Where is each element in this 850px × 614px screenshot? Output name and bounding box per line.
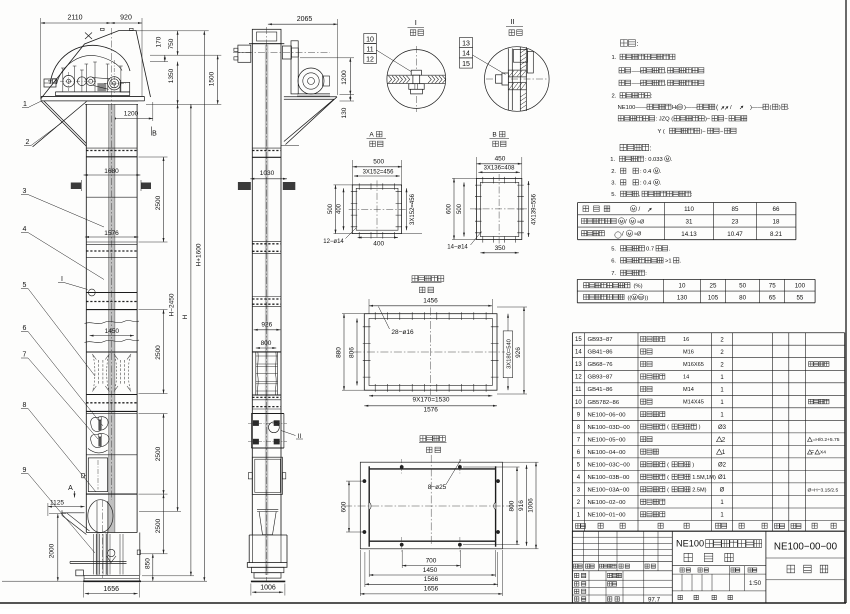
svg-text:GB5782−86: GB5782−86 bbox=[588, 400, 620, 406]
svg-text:Ø=H−3.15/2.5: Ø=H−3.15/2.5 bbox=[808, 487, 839, 493]
svg-text:M16X65: M16X65 bbox=[683, 362, 704, 368]
svg-text:3X180=540: 3X180=540 bbox=[507, 339, 513, 369]
svg-text:1350: 1350 bbox=[168, 68, 175, 83]
svg-text:M16: M16 bbox=[683, 350, 694, 356]
svg-text:1006: 1006 bbox=[260, 585, 276, 592]
svg-text:880: 880 bbox=[335, 347, 342, 358]
svg-text:55: 55 bbox=[796, 294, 803, 301]
svg-text:(: ( bbox=[667, 462, 669, 468]
svg-text:H: H bbox=[182, 314, 189, 319]
svg-text:M: M bbox=[639, 295, 643, 300]
svg-text:700: 700 bbox=[426, 557, 437, 564]
svg-text:1200: 1200 bbox=[124, 111, 139, 118]
svg-text:M: M bbox=[655, 169, 659, 174]
svg-text:2500: 2500 bbox=[155, 345, 162, 360]
svg-text:1456: 1456 bbox=[423, 297, 438, 304]
svg-text:1566: 1566 bbox=[424, 576, 439, 583]
svg-text:GB93−87: GB93−87 bbox=[588, 375, 613, 381]
svg-text:: 0.4: : 0.4 bbox=[640, 169, 652, 175]
svg-text:2110: 2110 bbox=[67, 15, 82, 22]
svg-text:600: 600 bbox=[341, 501, 348, 512]
svg-text:1006: 1006 bbox=[527, 498, 534, 513]
svg-text:1450: 1450 bbox=[423, 567, 438, 574]
svg-text:: 0.033: : 0.033 bbox=[645, 157, 663, 163]
svg-text:Ø: Ø bbox=[720, 488, 725, 494]
svg-text:5: 5 bbox=[23, 282, 27, 289]
svg-text:GB93−87: GB93−87 bbox=[588, 337, 613, 343]
svg-text:M14: M14 bbox=[683, 387, 694, 393]
svg-text:)−: )− bbox=[705, 117, 711, 123]
svg-text:,: , bbox=[665, 81, 666, 87]
svg-text:6: 6 bbox=[23, 325, 27, 332]
svg-text:14.13: 14.13 bbox=[681, 231, 697, 238]
svg-text:Ø2: Ø2 bbox=[718, 463, 727, 469]
svg-text:B: B bbox=[492, 132, 496, 139]
svg-text:3.: 3. bbox=[611, 181, 616, 187]
svg-text:NE100−02−00: NE100−02−00 bbox=[588, 500, 627, 506]
svg-text:13: 13 bbox=[462, 41, 470, 48]
svg-text:920: 920 bbox=[120, 15, 132, 22]
svg-text:800: 800 bbox=[508, 500, 515, 511]
svg-text:2.: 2. bbox=[611, 169, 616, 175]
svg-text:NE100−01−00: NE100−01−00 bbox=[588, 512, 627, 518]
svg-text:M: M bbox=[655, 180, 659, 185]
svg-text:100: 100 bbox=[795, 283, 806, 290]
svg-text:GB41−86: GB41−86 bbox=[588, 350, 614, 356]
svg-text:: 0.4: : 0.4 bbox=[640, 181, 652, 187]
svg-text:GB41−86: GB41−86 bbox=[588, 387, 614, 393]
svg-text:=: = bbox=[811, 450, 814, 456]
svg-text:(: ( bbox=[667, 425, 669, 431]
svg-text:750: 750 bbox=[168, 38, 175, 49]
svg-text:1: 1 bbox=[23, 101, 27, 108]
svg-text:2500: 2500 bbox=[155, 518, 162, 533]
svg-text:: JZQ (: : JZQ ( bbox=[656, 117, 674, 123]
svg-text:130: 130 bbox=[677, 294, 688, 301]
svg-text:806: 806 bbox=[349, 347, 356, 358]
svg-text:,: , bbox=[665, 69, 666, 75]
svg-text:)): )) bbox=[645, 295, 649, 301]
svg-text:1125: 1125 bbox=[50, 500, 64, 507]
svg-text:A: A bbox=[369, 132, 374, 139]
svg-text:6.: 6. bbox=[611, 259, 616, 265]
svg-text:5.: 5. bbox=[611, 247, 616, 253]
svg-text:(: ( bbox=[770, 105, 772, 111]
svg-text:M: M bbox=[633, 295, 637, 300]
svg-text:10.47: 10.47 bbox=[727, 231, 743, 238]
svg-text:14: 14 bbox=[575, 350, 582, 356]
svg-text:1.: 1. bbox=[612, 55, 617, 61]
svg-text:NE100: NE100 bbox=[676, 539, 704, 549]
svg-text:170: 170 bbox=[156, 36, 163, 47]
svg-text:926: 926 bbox=[261, 322, 272, 329]
svg-text:97.7: 97.7 bbox=[648, 597, 661, 604]
svg-text:M: M bbox=[678, 105, 682, 110]
svg-text:)——: )—— bbox=[750, 105, 764, 111]
svg-text:1656: 1656 bbox=[103, 586, 119, 593]
svg-text:NE100−06−00: NE100−06−00 bbox=[588, 412, 627, 418]
svg-text:4X139=556: 4X139=556 bbox=[531, 193, 537, 225]
svg-text:X4: X4 bbox=[820, 450, 826, 456]
svg-text:(: ( bbox=[667, 487, 669, 493]
svg-text:3: 3 bbox=[23, 188, 27, 195]
svg-text:1450: 1450 bbox=[105, 328, 120, 335]
svg-text:2500: 2500 bbox=[155, 446, 162, 461]
svg-text:75: 75 bbox=[769, 283, 776, 290]
svg-text:500: 500 bbox=[457, 203, 463, 214]
svg-text:M14X45: M14X45 bbox=[683, 400, 704, 406]
svg-text:16: 16 bbox=[683, 337, 689, 343]
svg-text:M: M bbox=[666, 157, 670, 162]
svg-text:1:50: 1:50 bbox=[749, 580, 762, 587]
svg-text:80: 80 bbox=[739, 294, 746, 301]
svg-text:85: 85 bbox=[732, 206, 739, 213]
svg-text:15: 15 bbox=[462, 61, 470, 68]
svg-text:12−ø14: 12−ø14 bbox=[323, 239, 344, 245]
svg-text:31: 31 bbox=[686, 219, 693, 226]
svg-text:M: M bbox=[632, 207, 636, 213]
svg-text:110: 110 bbox=[684, 206, 694, 213]
svg-text:Ø1: Ø1 bbox=[718, 475, 727, 481]
svg-text:): ) bbox=[779, 105, 781, 111]
svg-text:4: 4 bbox=[23, 226, 27, 233]
svg-text:12: 12 bbox=[366, 56, 374, 63]
svg-text:600: 600 bbox=[447, 203, 453, 214]
svg-text:2.: 2. bbox=[612, 94, 617, 100]
svg-text:2500: 2500 bbox=[155, 195, 162, 210]
svg-text:M: M bbox=[620, 219, 624, 225]
svg-text:Y (: Y ( bbox=[658, 129, 665, 135]
svg-text:>1: >1 bbox=[665, 259, 672, 265]
svg-text:II: II bbox=[510, 17, 514, 26]
svg-text:3X152=456: 3X152=456 bbox=[410, 193, 416, 225]
svg-text:926: 926 bbox=[515, 347, 522, 358]
svg-text:11: 11 bbox=[366, 46, 373, 53]
svg-text:0.7: 0.7 bbox=[646, 247, 654, 253]
svg-text:500: 500 bbox=[328, 203, 334, 214]
svg-text:(: ( bbox=[667, 475, 669, 481]
svg-text:1576: 1576 bbox=[423, 407, 438, 414]
svg-text:800: 800 bbox=[261, 340, 272, 347]
svg-text:M: M bbox=[631, 219, 635, 225]
svg-text:1576: 1576 bbox=[104, 230, 119, 237]
svg-text:23: 23 bbox=[732, 219, 739, 226]
svg-text:8−ø25: 8−ø25 bbox=[428, 484, 447, 491]
svg-text:1.: 1. bbox=[610, 157, 615, 163]
svg-text:65: 65 bbox=[769, 294, 776, 301]
svg-text:5.: 5. bbox=[611, 192, 616, 198]
svg-text:GB68−76: GB68−76 bbox=[588, 362, 614, 368]
svg-text:1500: 1500 bbox=[208, 71, 215, 86]
svg-text:14−ø14: 14−ø14 bbox=[447, 245, 468, 251]
svg-text:——: —— bbox=[632, 69, 643, 75]
svg-text:≈Ø: ≈Ø bbox=[637, 219, 645, 225]
svg-text:66: 66 bbox=[773, 206, 780, 213]
svg-text:——: —— bbox=[632, 81, 643, 87]
svg-text:916: 916 bbox=[518, 500, 525, 511]
svg-text:14: 14 bbox=[462, 51, 470, 58]
svg-text:NE100−03B−00: NE100−03B−00 bbox=[588, 475, 631, 481]
svg-text:850: 850 bbox=[144, 558, 151, 569]
svg-text:H−2450: H−2450 bbox=[168, 293, 175, 316]
svg-text:): ) bbox=[699, 425, 701, 431]
svg-text:2000: 2000 bbox=[49, 543, 56, 558]
svg-text:NE100−03A−00: NE100−03A−00 bbox=[588, 487, 631, 493]
svg-text:10: 10 bbox=[366, 36, 374, 43]
svg-text:NE100−03D−00: NE100−03D−00 bbox=[588, 425, 631, 431]
svg-text:)——: )—— bbox=[684, 105, 698, 111]
svg-text:Ø3: Ø3 bbox=[718, 425, 727, 431]
svg-text:105: 105 bbox=[708, 294, 719, 301]
svg-text:28−ø16: 28−ø16 bbox=[391, 329, 414, 336]
svg-text:2065: 2065 bbox=[297, 16, 313, 23]
svg-text:1680: 1680 bbox=[104, 168, 119, 175]
svg-text:18: 18 bbox=[773, 219, 780, 226]
svg-text:50: 50 bbox=[739, 283, 746, 290]
svg-text:8: 8 bbox=[23, 402, 27, 409]
svg-text:=H/0.2+5.75: =H/0.2+5.75 bbox=[813, 437, 840, 443]
svg-text:9X170=1530: 9X170=1530 bbox=[412, 397, 449, 404]
svg-text:NE100−04−00: NE100−04−00 bbox=[588, 450, 627, 456]
svg-text::: : bbox=[637, 41, 639, 48]
svg-text:H+1600: H+1600 bbox=[196, 243, 203, 266]
svg-text:I: I bbox=[415, 18, 417, 27]
svg-text:7.: 7. bbox=[611, 271, 616, 277]
svg-text:12: 12 bbox=[575, 375, 582, 381]
svg-text:9: 9 bbox=[23, 467, 27, 474]
svg-text:): ) bbox=[692, 462, 694, 468]
svg-text:,: , bbox=[639, 192, 640, 198]
svg-text:25: 25 bbox=[710, 283, 717, 290]
svg-text:(%): (%) bbox=[634, 284, 643, 290]
svg-text:11: 11 bbox=[575, 387, 582, 393]
svg-text:A: A bbox=[68, 485, 73, 492]
svg-text:400: 400 bbox=[336, 203, 342, 214]
svg-text:1200: 1200 bbox=[341, 70, 348, 85]
svg-text:NE100−00−00: NE100−00−00 bbox=[774, 542, 838, 553]
svg-text:2.5M): 2.5M) bbox=[692, 487, 706, 493]
svg-text:((: (( bbox=[628, 295, 632, 301]
svg-text::: : bbox=[650, 146, 652, 153]
svg-text:NE100−05−00: NE100−05−00 bbox=[588, 437, 627, 443]
svg-text:1030: 1030 bbox=[260, 170, 275, 177]
svg-text:)−: )− bbox=[701, 129, 707, 135]
svg-text:B: B bbox=[152, 131, 157, 138]
svg-text:1.5M,1M): 1.5M,1M) bbox=[692, 475, 716, 481]
svg-text:7: 7 bbox=[23, 352, 27, 359]
svg-text:10: 10 bbox=[679, 283, 686, 290]
svg-text:13: 13 bbox=[575, 362, 582, 368]
svg-text:14: 14 bbox=[683, 375, 689, 381]
svg-text:450: 450 bbox=[495, 156, 506, 163]
svg-text:3X152=456: 3X152=456 bbox=[363, 169, 395, 175]
svg-text:NE100−03C−00: NE100−03C−00 bbox=[588, 462, 631, 468]
svg-text:350: 350 bbox=[495, 245, 506, 252]
svg-text:500: 500 bbox=[373, 159, 384, 166]
svg-text:130: 130 bbox=[341, 107, 348, 118]
svg-text:2: 2 bbox=[26, 139, 30, 146]
svg-text:15: 15 bbox=[575, 337, 582, 343]
svg-text:I: I bbox=[61, 276, 63, 283]
svg-text:M: M bbox=[628, 231, 632, 237]
svg-text:10: 10 bbox=[575, 400, 582, 406]
svg-text:1656: 1656 bbox=[424, 586, 439, 593]
svg-text:3X136=408: 3X136=408 bbox=[484, 166, 516, 172]
svg-text:NE100——: NE100—— bbox=[618, 105, 648, 111]
svg-text:≈Ø: ≈Ø bbox=[634, 232, 642, 238]
svg-text:8.21: 8.21 bbox=[770, 231, 783, 238]
svg-text:400: 400 bbox=[373, 240, 384, 247]
